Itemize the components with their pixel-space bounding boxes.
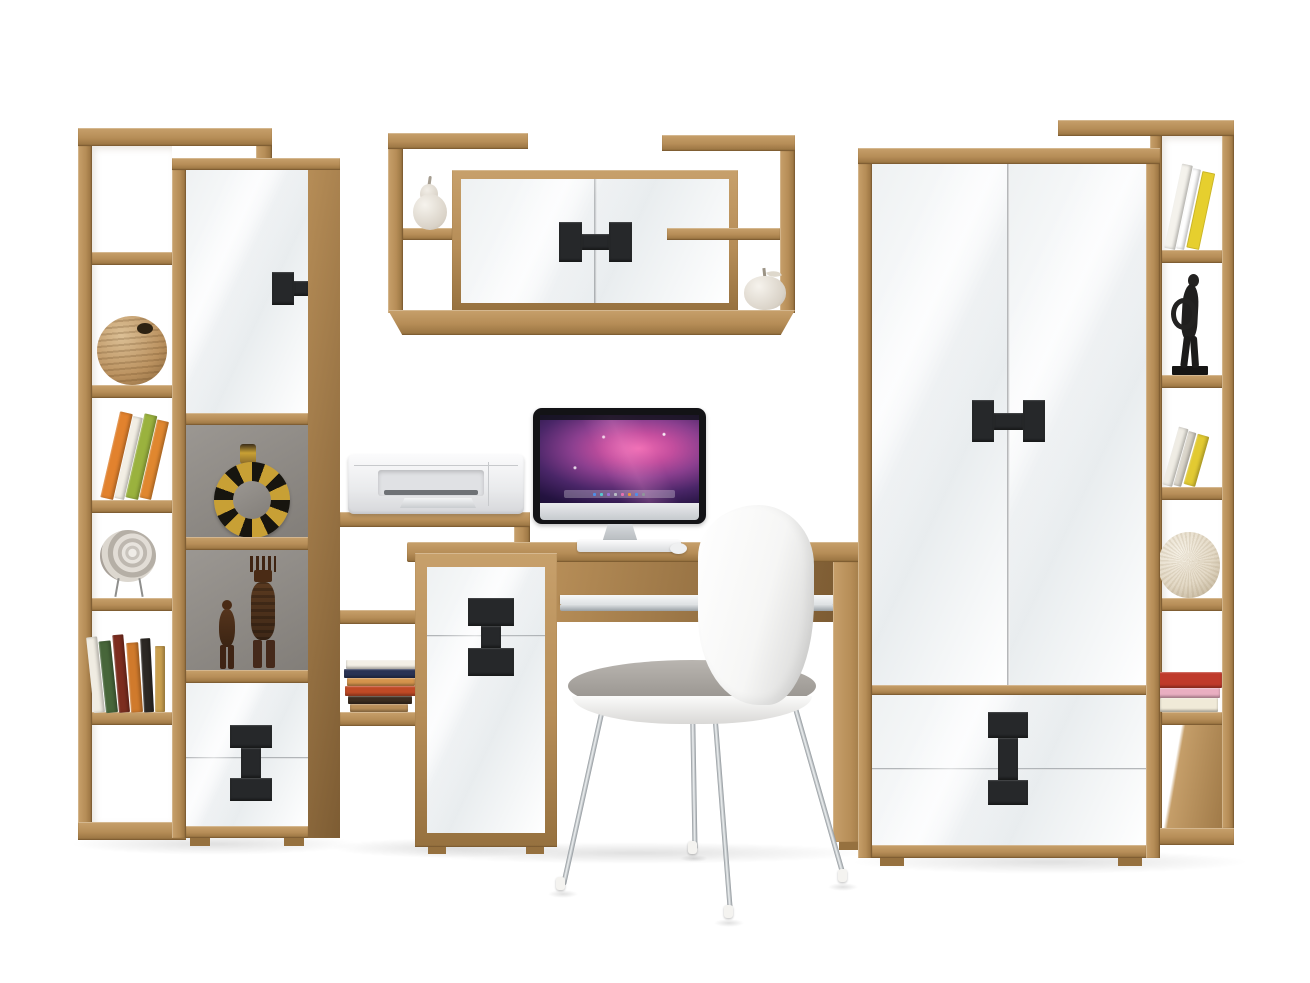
printer (348, 454, 524, 514)
drawer-handle-cap (230, 778, 272, 801)
dock-app-icon (600, 493, 603, 496)
wardrobe-drawer-handle-cap (988, 780, 1028, 805)
wardrobe-band (872, 685, 1146, 695)
book-stacked (350, 704, 408, 712)
bookcase-left-side (78, 146, 92, 840)
bookcase-top-board (1058, 120, 1234, 136)
bookcase-shelf (1162, 487, 1222, 500)
vessel-cork (240, 444, 256, 464)
small-figurine-leg (228, 645, 234, 669)
book-stacked (347, 678, 415, 686)
step-shelf-top (340, 512, 530, 527)
bookcase-right-side (1222, 136, 1234, 828)
bookcase-shelf (92, 385, 172, 398)
sculpture-arm-loop (1171, 298, 1197, 330)
bookcase-shelf (92, 712, 172, 725)
imac-screen (540, 415, 699, 503)
book-row (92, 632, 172, 712)
keyboard (577, 540, 681, 552)
sculpture-leg (1190, 336, 1199, 368)
printer-lid-seam (354, 465, 518, 466)
dock-app-icon (635, 493, 638, 496)
wallshelf-handle-block (559, 222, 582, 262)
cabinet-foot (190, 838, 210, 846)
rattan-ball-vase (97, 316, 167, 385)
figurine-body (251, 582, 275, 640)
cabinet-band (186, 413, 308, 425)
desk-cabinet-handle-cap (468, 648, 514, 676)
cabinet-right-side (308, 170, 340, 838)
figurine-head (254, 570, 272, 582)
dock-app-icon (607, 493, 610, 496)
chair-leg (712, 710, 733, 915)
chair-foot-cap (688, 841, 697, 854)
cabinet-shelf (186, 670, 308, 683)
wallshelf-top-right (662, 135, 795, 151)
book-stacked (1156, 672, 1222, 688)
chair-foot-cap (724, 905, 733, 918)
desk-foot (839, 842, 859, 850)
small-figurine-body (219, 609, 235, 647)
wardrobe-foot (880, 858, 904, 866)
chair-foot-shadow (680, 855, 708, 862)
wallshelf-handle-bar (582, 234, 609, 250)
leaning-books (1162, 424, 1222, 487)
wardrobe-drawer-handle-cap (988, 712, 1028, 738)
wardrobe-top (858, 148, 1160, 164)
cabinet-top (172, 158, 340, 170)
imac-chin (540, 503, 699, 520)
wardrobe-left-side (858, 164, 872, 858)
bookcase-shelf (1162, 712, 1222, 725)
bookcase-shelf (92, 500, 172, 513)
wardrobe-drawer-handle-stem (998, 738, 1018, 780)
desk-cabinet-handle-cap (468, 598, 514, 626)
product-photo-stage (0, 0, 1310, 983)
book-stacked (1160, 698, 1218, 712)
cabinet-shelf (186, 537, 308, 550)
wallshelf-top-left (388, 133, 528, 149)
printer-paper-slot (384, 490, 478, 495)
chair-back (698, 505, 814, 705)
bookcase-shelf (92, 252, 172, 265)
bookcase-shelf (1162, 375, 1222, 388)
dock-app-icon (621, 493, 624, 496)
black-sculpture (1168, 272, 1212, 375)
vessel-ring-hole (233, 481, 271, 519)
step-shelf-low (340, 712, 420, 726)
bookcase-bottom-board (1150, 828, 1234, 845)
printer-output-tray (400, 498, 476, 508)
door-handle (272, 272, 294, 305)
leaning-books (1162, 160, 1222, 250)
dock-app-icon (642, 493, 645, 496)
wallshelf-bottom-board (388, 310, 795, 335)
book-stacked (1158, 688, 1220, 698)
bookcase-shelf (92, 598, 172, 611)
drawer-handle-cap (230, 725, 272, 748)
desk-cabinet-foot (526, 847, 544, 854)
figurine-leg (266, 640, 275, 668)
stacked-books (1156, 672, 1224, 712)
dock-app-icon (628, 493, 631, 496)
cabinet-foot (284, 838, 304, 846)
wallshelf-apple-shelf (667, 228, 780, 240)
mouse (670, 543, 687, 554)
wardrobe-foot (1118, 858, 1142, 866)
wardrobe-right-side (1146, 164, 1160, 858)
bookcase-shelf (1162, 250, 1222, 263)
textured-sphere (1158, 532, 1220, 598)
drawer-handle-stem (241, 748, 261, 778)
book-stacked (348, 696, 412, 704)
chair-foot-cap (838, 869, 847, 882)
bookcase-open-bottom-niche (1162, 725, 1222, 828)
book-stacked (344, 669, 416, 678)
leaning-books (92, 404, 172, 500)
desk-cabinet-foot (428, 847, 446, 854)
chair-foot-shadow (714, 919, 744, 927)
door-handle-bar (294, 281, 308, 296)
desk-cabinet-handle-stem (481, 626, 501, 648)
cabinet-niche (186, 550, 308, 670)
wardrobe-handle-bar (994, 413, 1023, 430)
small-figurine-leg (220, 645, 226, 669)
cabinet-bottom (186, 826, 308, 838)
wallshelf-left-side (388, 149, 403, 313)
pear-body (413, 194, 447, 230)
dock-app-icon (593, 493, 596, 496)
imac-menu-bar (540, 415, 699, 420)
wardrobe-handle-block (1023, 400, 1045, 442)
cabinet-left-side (172, 170, 186, 838)
stacked-books (344, 660, 418, 712)
bookcase-bottom-board (78, 822, 186, 840)
rattan-ball-opening (137, 323, 153, 334)
chair-leg (690, 705, 698, 850)
printer-side-seam (488, 462, 489, 506)
book-spine (155, 646, 165, 712)
figurine-leg (253, 640, 262, 668)
bookcase-top-board (78, 128, 272, 146)
imac-dock (564, 490, 675, 498)
book-stacked (346, 660, 416, 669)
wallshelf-handle-block (609, 222, 632, 262)
chair-foot-shadow (828, 883, 858, 891)
dock-app-icon (614, 493, 617, 496)
chair-foot-shadow (548, 890, 578, 898)
chair-foot-cap (556, 877, 565, 890)
apple-body (744, 276, 786, 310)
shell-body (100, 530, 156, 582)
sculpture-base (1172, 366, 1208, 375)
wardrobe-bottom (872, 845, 1146, 858)
book-stacked (345, 686, 417, 696)
wardrobe-handle-block (972, 400, 994, 442)
bookcase-shelf (1162, 598, 1222, 611)
